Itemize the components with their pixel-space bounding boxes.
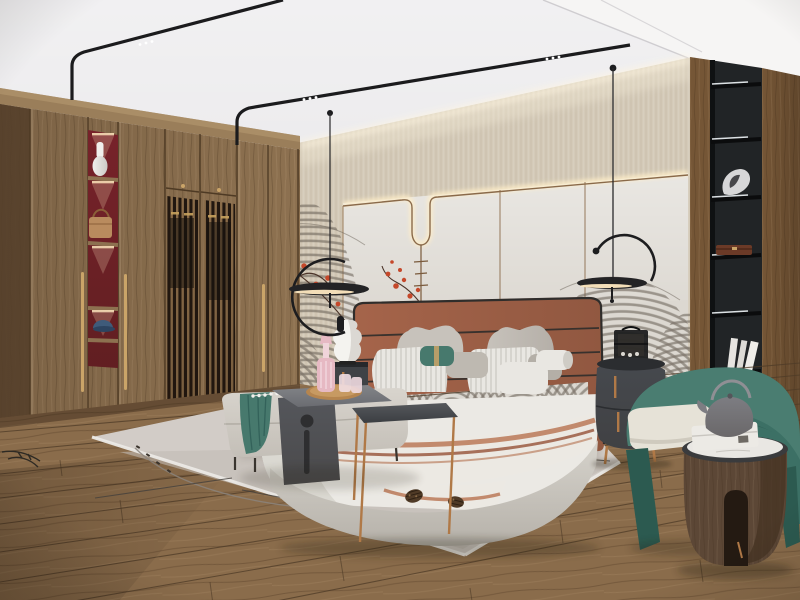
vignette bbox=[0, 0, 800, 600]
bedroom-photo bbox=[0, 0, 800, 600]
scene-canvas bbox=[0, 0, 800, 600]
